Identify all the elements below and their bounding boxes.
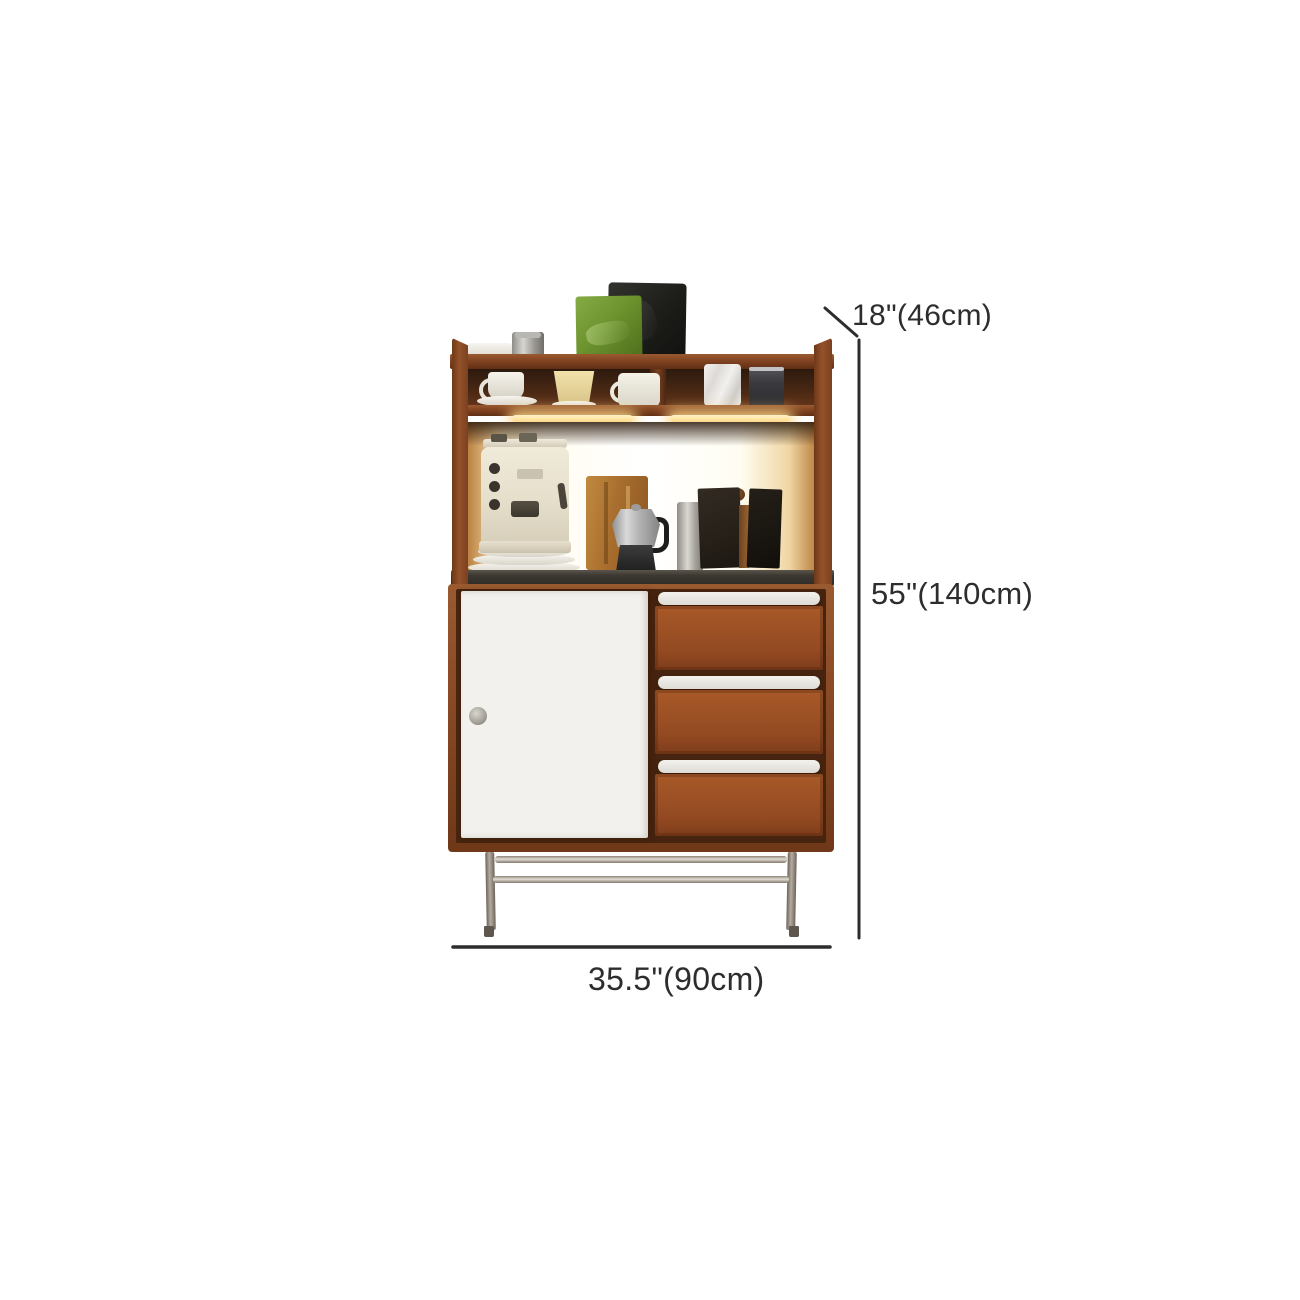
hutch-side-panel-right [814,338,832,584]
base-rail-lower [493,876,789,883]
dark-book-board [698,487,743,568]
sliding-door [461,591,648,838]
height-dimension-label: 55"(140cm) [871,576,1033,612]
moka-lid-knob [631,504,641,511]
machine-base [479,541,571,553]
white-mug-body [618,373,660,407]
led-strip-right [670,415,790,422]
coffee-bar-cabinet [0,0,1300,1300]
moka-top [612,509,660,547]
drawer [655,591,823,674]
drawer-face [655,690,823,754]
espresso-machine [479,439,571,553]
tray-cups [491,434,507,442]
base-leg-right [786,852,797,930]
bag-fold [584,318,631,348]
base-foot-left [484,926,494,937]
yellow-mug-body [551,371,597,405]
machine-badge [517,469,543,479]
marble-mug [704,364,741,406]
led-strip-left [512,415,633,422]
machine-knob [489,463,500,474]
product-dimension-diagram: 18"(46cm) 55"(140cm) 35.5"(90cm) [0,0,1300,1300]
drawer-stack [655,591,823,838]
base-foot-right [789,926,799,937]
drawer [655,675,823,758]
machine-knob [489,481,500,492]
tray-cups [519,433,537,442]
base-rail-upper [495,856,787,863]
canister-lid [515,332,541,338]
white-mug [610,373,660,407]
tin-rim [749,367,784,371]
moka-pot [612,509,664,572]
drawer-handle [658,676,820,689]
dark-book-board [747,488,783,568]
depth-dimension-label: 18"(46cm) [852,299,992,333]
drawer-handle [658,760,820,773]
bag-fold-line [604,482,608,564]
drawer-face [655,774,823,836]
teacup-body [488,372,524,399]
green-coffee-bag [575,295,642,357]
drawer [655,759,823,838]
black-tin-mug [749,367,784,407]
teacup-with-saucer [477,372,537,408]
portafilter [515,517,535,535]
moka-base [616,545,656,572]
group-head [511,501,539,517]
drawer-handle [658,592,820,605]
base-leg-left [485,852,496,930]
width-dimension-label: 35.5"(90cm) [588,961,765,998]
door-knob [469,707,487,725]
yellow-mug [551,371,597,407]
hutch-side-panel-left [452,338,468,584]
drawer-face [655,606,823,670]
machine-knob [489,499,500,510]
